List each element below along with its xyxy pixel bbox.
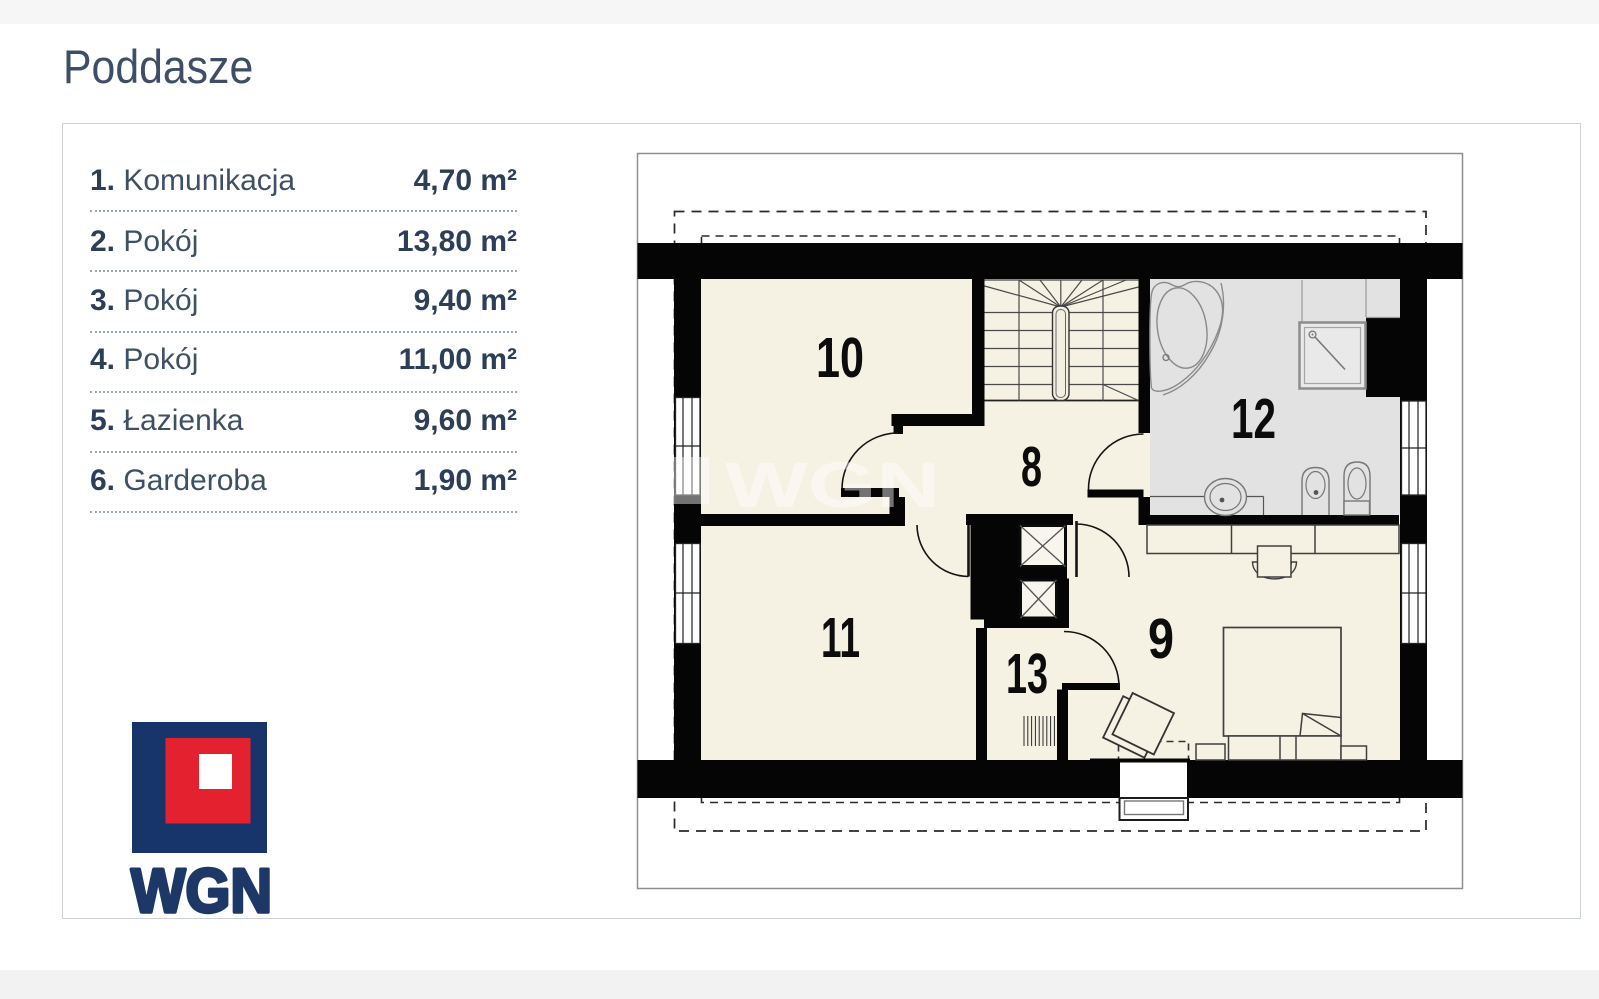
svg-text:10: 10 <box>816 326 864 390</box>
svg-text:WGN: WGN <box>131 857 272 925</box>
svg-text:11: 11 <box>821 606 860 670</box>
svg-text:13: 13 <box>1006 642 1048 706</box>
svg-text:WGN: WGN <box>725 449 940 521</box>
svg-text:12: 12 <box>1231 387 1276 451</box>
svg-text:8: 8 <box>1021 435 1042 499</box>
svg-text:9: 9 <box>1148 607 1174 671</box>
